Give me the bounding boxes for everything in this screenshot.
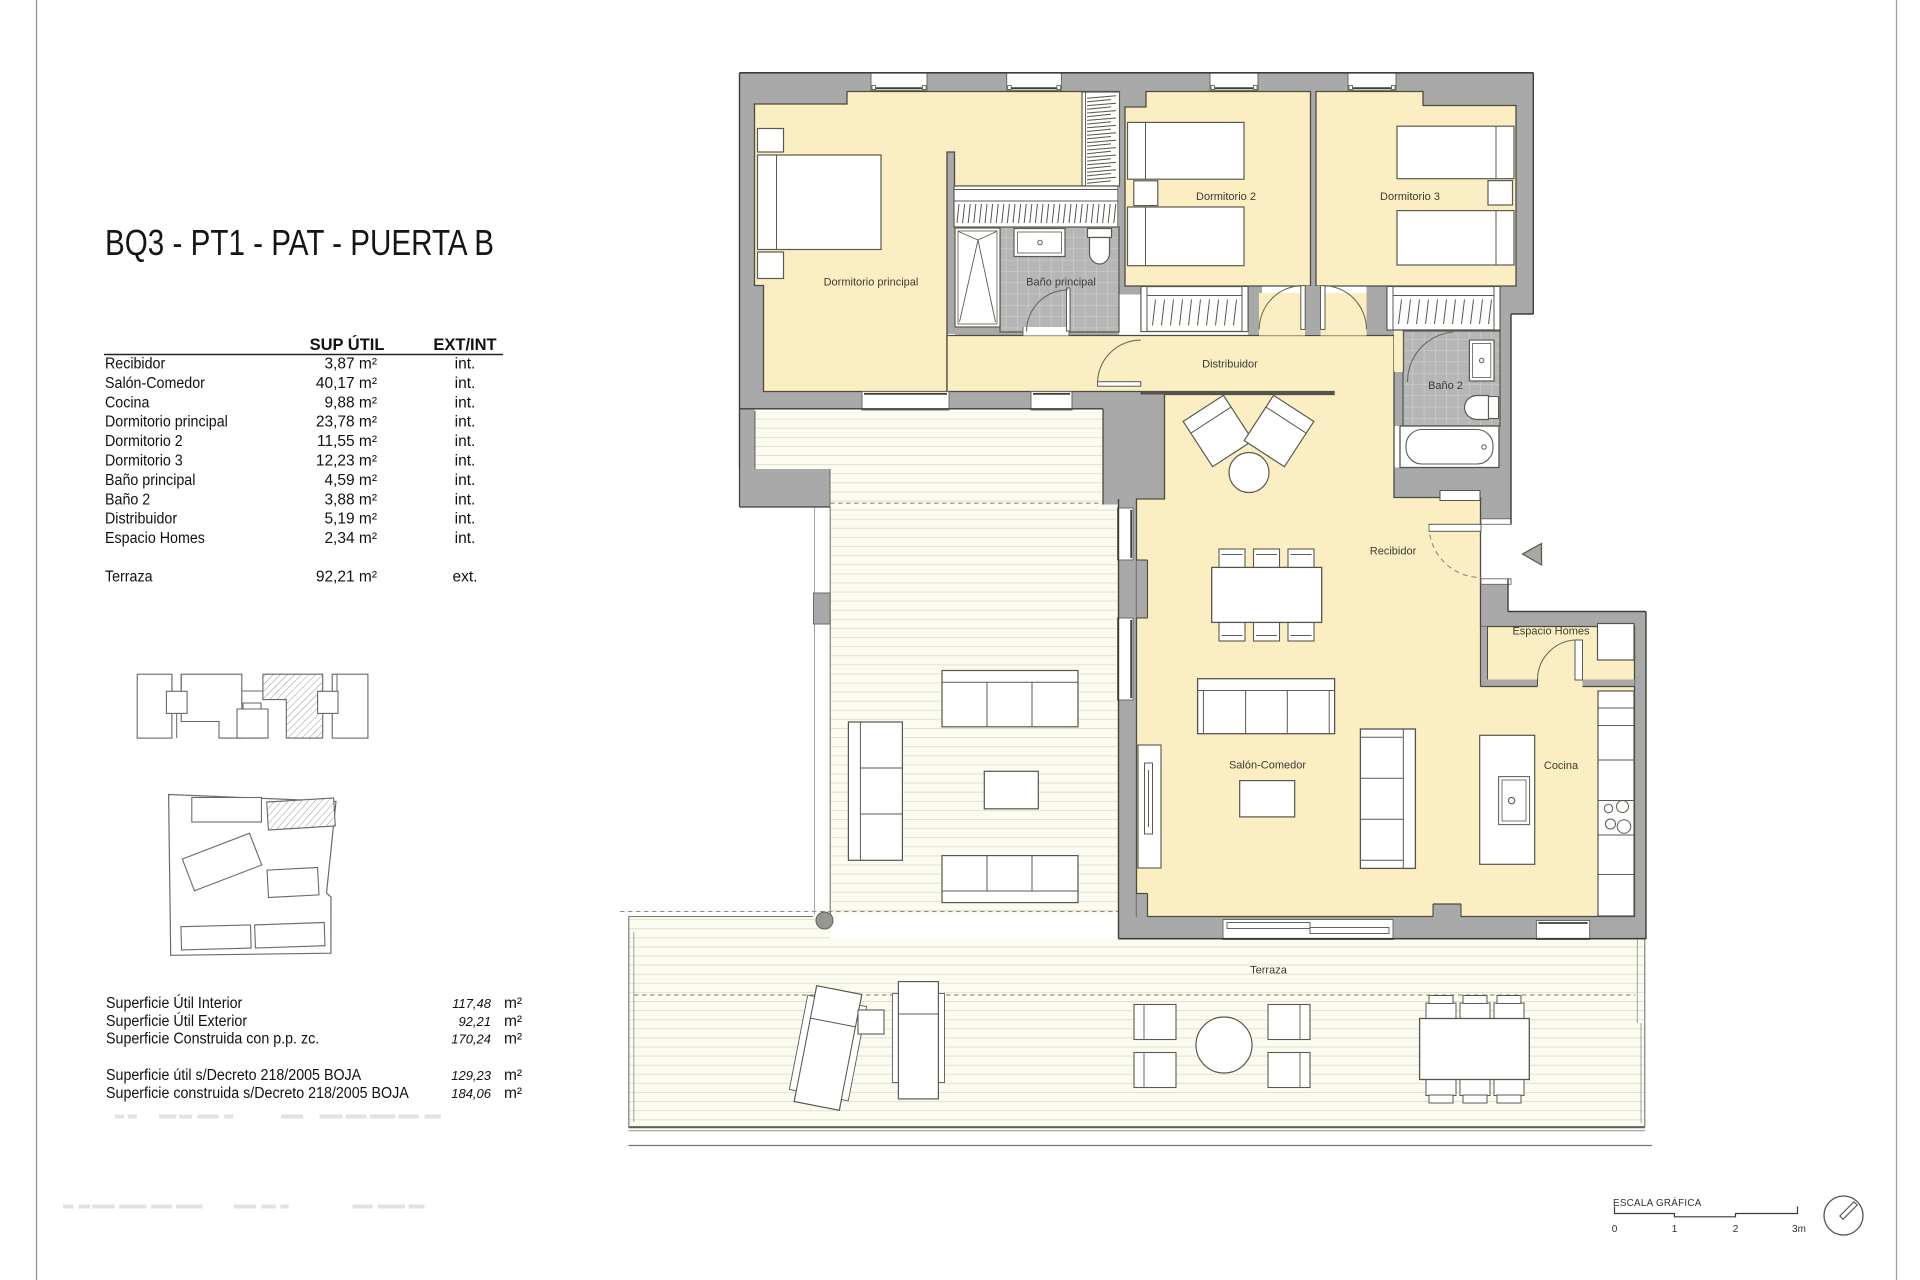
svg-text:Dormitorio principal: Dormitorio principal <box>105 414 228 431</box>
svg-text:23,78 m²: 23,78 m² <box>316 414 377 431</box>
svg-text:2,34 m²: 2,34 m² <box>324 530 377 547</box>
svg-text:129,23: 129,23 <box>451 1068 492 1083</box>
svg-text:Cocina: Cocina <box>1544 760 1579 772</box>
svg-text:Superficie Útil Exterior: Superficie Útil Exterior <box>106 1013 247 1030</box>
svg-text:184,06: 184,06 <box>451 1086 492 1101</box>
svg-text:Terraza: Terraza <box>105 569 153 586</box>
svg-text:Distribuidor: Distribuidor <box>1202 359 1258 371</box>
svg-text:Distribuidor: Distribuidor <box>105 511 177 528</box>
svg-text:m²: m² <box>504 1085 522 1102</box>
svg-text:Cocina: Cocina <box>105 394 150 411</box>
svg-text:ESCALA GRÁFICA: ESCALA GRÁFICA <box>1613 1198 1702 1209</box>
svg-text:1: 1 <box>1672 1224 1678 1235</box>
svg-text:Dormitorio principal: Dormitorio principal <box>824 277 919 289</box>
svg-text:9,88 m²: 9,88 m² <box>324 394 377 411</box>
svg-text:Espacio Homes: Espacio Homes <box>1512 626 1590 638</box>
svg-text:3m: 3m <box>1792 1224 1806 1235</box>
svg-text:int.: int. <box>455 530 476 547</box>
svg-text:int.: int. <box>455 394 476 411</box>
svg-text:Superficie Útil Interior: Superficie Útil Interior <box>106 995 242 1012</box>
svg-text:40,17 m²: 40,17 m² <box>316 375 377 392</box>
svg-text:0: 0 <box>1612 1224 1618 1235</box>
svg-text:int.: int. <box>455 472 476 489</box>
svg-text:4,59 m²: 4,59 m² <box>324 472 377 489</box>
svg-text:int.: int. <box>455 414 476 431</box>
svg-text:Salón-Comedor: Salón-Comedor <box>1229 760 1306 772</box>
svg-text:int.: int. <box>455 356 476 373</box>
svg-text:Superficie Construida con p.p.: Superficie Construida con p.p. zc. <box>106 1031 319 1048</box>
svg-text:5,19 m²: 5,19 m² <box>324 511 377 528</box>
svg-text:m²: m² <box>504 1013 522 1030</box>
svg-text:m²: m² <box>504 995 522 1012</box>
svg-text:Dormitorio 3: Dormitorio 3 <box>105 453 183 470</box>
svg-text:EXT/INT: EXT/INT <box>433 336 496 354</box>
svg-text:92,21: 92,21 <box>458 1014 491 1029</box>
svg-text:170,24: 170,24 <box>451 1032 491 1047</box>
svg-text:Baño 2: Baño 2 <box>1428 380 1463 392</box>
svg-text:int.: int. <box>455 511 476 528</box>
svg-text:Baño principal: Baño principal <box>105 472 195 489</box>
svg-text:m²: m² <box>504 1031 522 1048</box>
svg-text:12,23 m²: 12,23 m² <box>316 453 377 470</box>
svg-text:3,88 m²: 3,88 m² <box>324 491 377 508</box>
svg-text:Terraza: Terraza <box>1250 965 1288 977</box>
svg-text:Superficie útil s/Decreto 218/: Superficie útil s/Decreto 218/2005 BOJA <box>106 1067 362 1084</box>
svg-text:Baño principal: Baño principal <box>1026 277 1096 289</box>
svg-text:2: 2 <box>1733 1224 1739 1235</box>
svg-text:11,55 m²: 11,55 m² <box>317 433 377 450</box>
svg-text:Dormitorio 2: Dormitorio 2 <box>105 433 183 450</box>
svg-text:ext.: ext. <box>453 569 478 586</box>
svg-text:Recibidor: Recibidor <box>105 356 165 373</box>
svg-text:Baño 2: Baño 2 <box>105 491 150 508</box>
svg-text:Dormitorio 3: Dormitorio 3 <box>1380 191 1440 203</box>
svg-text:m²: m² <box>504 1067 522 1084</box>
svg-text:92,21 m²: 92,21 m² <box>316 569 377 586</box>
svg-text:SUP ÚTIL: SUP ÚTIL <box>310 335 385 354</box>
svg-text:Salón-Comedor: Salón-Comedor <box>105 375 205 392</box>
svg-text:Superficie construida s/Decret: Superficie construida s/Decreto 218/2005… <box>106 1085 409 1102</box>
svg-text:int.: int. <box>455 453 476 470</box>
svg-text:int.: int. <box>455 433 476 450</box>
svg-text:3,87 m²: 3,87 m² <box>324 356 377 373</box>
svg-text:BQ3 - PT1 - PAT - PUERTA B: BQ3 - PT1 - PAT - PUERTA B <box>105 222 494 263</box>
svg-text:int.: int. <box>455 491 476 508</box>
svg-text:Recibidor: Recibidor <box>1370 546 1417 558</box>
svg-text:Dormitorio 2: Dormitorio 2 <box>1196 191 1256 203</box>
svg-text:Espacio Homes: Espacio Homes <box>105 530 205 547</box>
svg-text:117,48: 117,48 <box>452 996 492 1011</box>
svg-text:int.: int. <box>455 375 476 392</box>
